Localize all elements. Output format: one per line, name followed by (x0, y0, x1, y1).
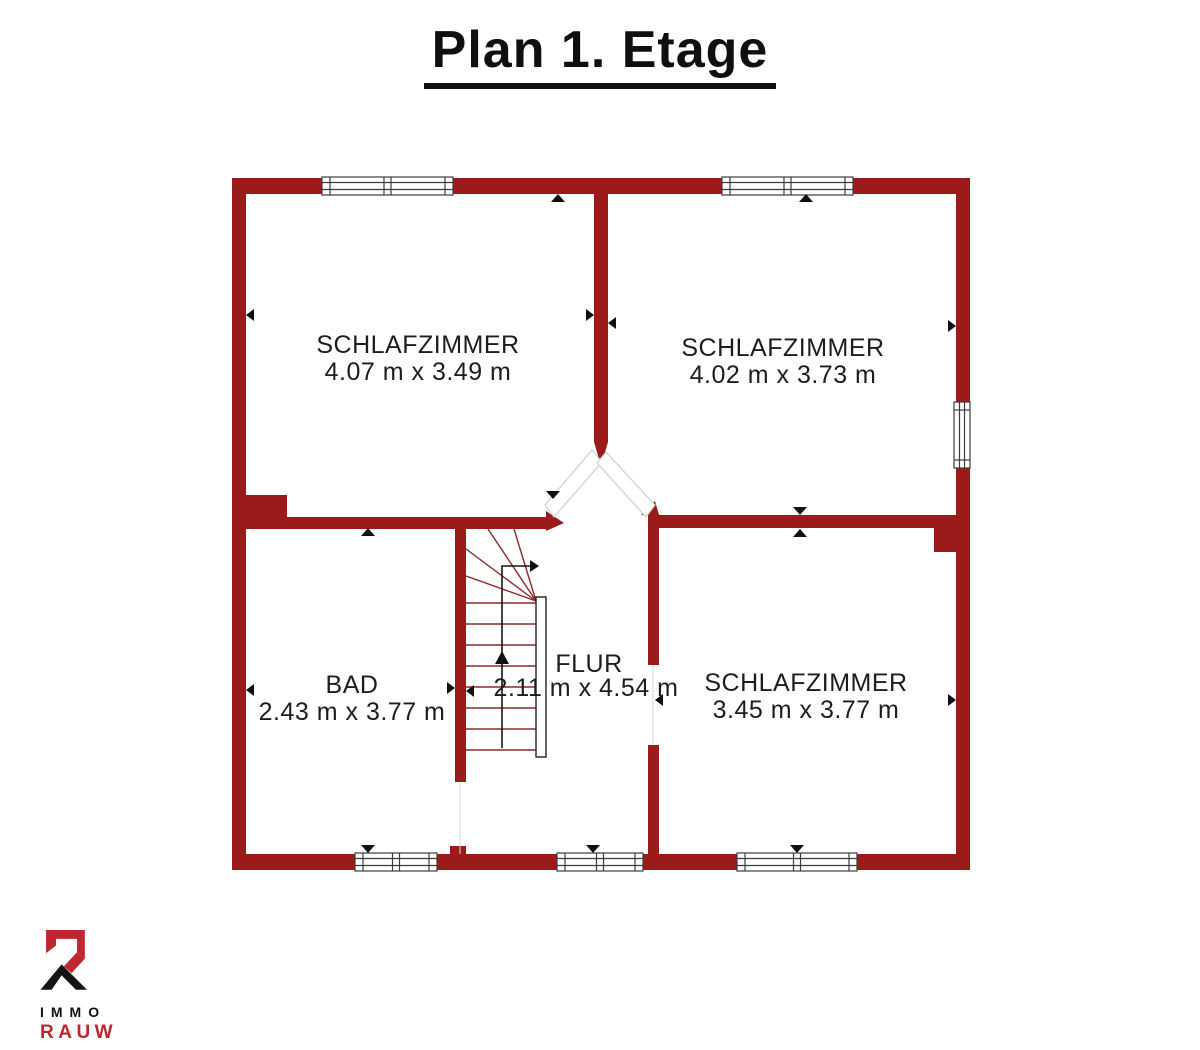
wall-mid-left (246, 517, 546, 529)
window-icon (722, 177, 853, 195)
tick-up-icon (793, 529, 807, 537)
staircase (466, 529, 546, 757)
wall-stub-bottom (450, 846, 466, 854)
wall-right (956, 178, 970, 870)
door-opening-left (545, 450, 602, 517)
room-label-bath: BAD (326, 671, 379, 699)
wall-pier (246, 495, 287, 519)
stair-winder (466, 549, 536, 601)
tick-left-icon (246, 684, 254, 696)
room-dims-bath: 2.43 m x 3.77 m (259, 698, 446, 726)
logo-r-icon (40, 930, 92, 992)
tick-down-icon (790, 845, 804, 853)
tick-down-icon (586, 845, 600, 853)
stair-arrow-right-icon (530, 560, 539, 572)
wall-mid-right (648, 515, 956, 528)
window-icon (954, 402, 970, 468)
interior-walls (246, 194, 956, 854)
tick-right-icon (948, 694, 956, 706)
room-dims-bedroom-top-right: 4.02 m x 3.73 m (690, 361, 877, 389)
wall-center-vertical (594, 194, 608, 442)
tick-left-icon (246, 309, 254, 321)
room-dims-bedroom-bottom-right: 3.45 m x 3.77 m (713, 696, 900, 724)
tick-right-icon (447, 682, 455, 694)
room-label-bedroom-top-left: SCHLAFZIMMER (316, 331, 519, 359)
tick-down-icon (793, 507, 807, 515)
tick-up-icon (361, 528, 375, 536)
brand-logo: IMMO RAUW (40, 930, 190, 1044)
wall-stairwell (455, 517, 466, 782)
wall-right-room-upper (648, 528, 659, 665)
tick-down-icon (361, 845, 375, 853)
window-icon (355, 853, 437, 871)
tick-right-icon (948, 320, 956, 332)
window-icon (322, 177, 453, 195)
floorplan-page: Plan 1. Etage (0, 0, 1200, 1050)
room-label-bedroom-bottom-right: SCHLAFZIMMER (704, 669, 907, 697)
wall-corner-notch (934, 528, 956, 552)
tick-right-icon (586, 309, 594, 321)
window-icon (557, 853, 643, 871)
tick-up-icon (551, 194, 565, 202)
wall-left (232, 178, 246, 870)
tick-left-icon (608, 317, 616, 329)
wall-right-room-lower (648, 745, 659, 854)
logo-text-rauw: RAUW (40, 1022, 190, 1044)
door-opening-right (597, 452, 655, 517)
room-label-bedroom-top-right: SCHLAFZIMMER (681, 334, 884, 362)
room-dims-hall: 2.11 m x 4.54 m (494, 674, 679, 702)
stair-arrow-up-icon (495, 651, 509, 664)
stair-winder (488, 529, 536, 601)
stair-winder (466, 576, 536, 601)
floorplan-drawing: SCHLAFZIMMER 4.07 m x 3.49 m SCHLAFZIMME… (0, 0, 1200, 1050)
room-dims-bedroom-top-left: 4.07 m x 3.49 m (325, 358, 512, 386)
logo-text-immo: IMMO (40, 1004, 190, 1020)
window-icon (737, 853, 857, 871)
